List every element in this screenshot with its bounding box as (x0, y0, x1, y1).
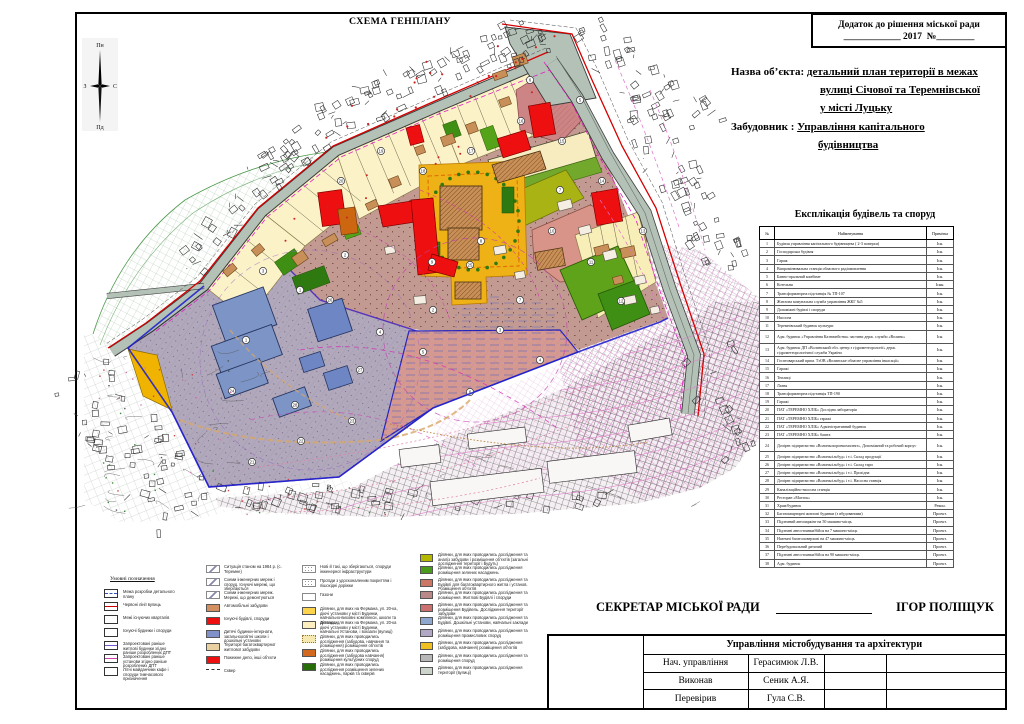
svg-text:12: 12 (619, 299, 624, 304)
svg-text:З: З (83, 84, 86, 90)
svg-text:18: 18 (421, 169, 426, 174)
svg-text:Пд: Пд (96, 125, 103, 131)
svg-text:23: 23 (350, 419, 355, 424)
svg-text:26: 26 (328, 298, 333, 303)
svg-text:22: 22 (299, 439, 304, 444)
svg-text:20: 20 (339, 179, 344, 184)
svg-text:15: 15 (560, 139, 565, 144)
svg-text:27: 27 (358, 368, 363, 373)
svg-text:25: 25 (468, 263, 473, 268)
svg-text:С: С (113, 84, 117, 90)
svg-text:19: 19 (379, 149, 384, 154)
svg-text:16: 16 (519, 119, 524, 124)
svg-text:10: 10 (550, 229, 555, 234)
svg-text:21: 21 (250, 460, 255, 465)
svg-text:28: 28 (293, 403, 298, 408)
svg-text:17: 17 (469, 149, 474, 154)
svg-text:11: 11 (589, 260, 594, 265)
svg-text:14: 14 (600, 179, 605, 184)
svg-text:13: 13 (641, 229, 646, 234)
svg-text:Пн: Пн (96, 43, 104, 49)
